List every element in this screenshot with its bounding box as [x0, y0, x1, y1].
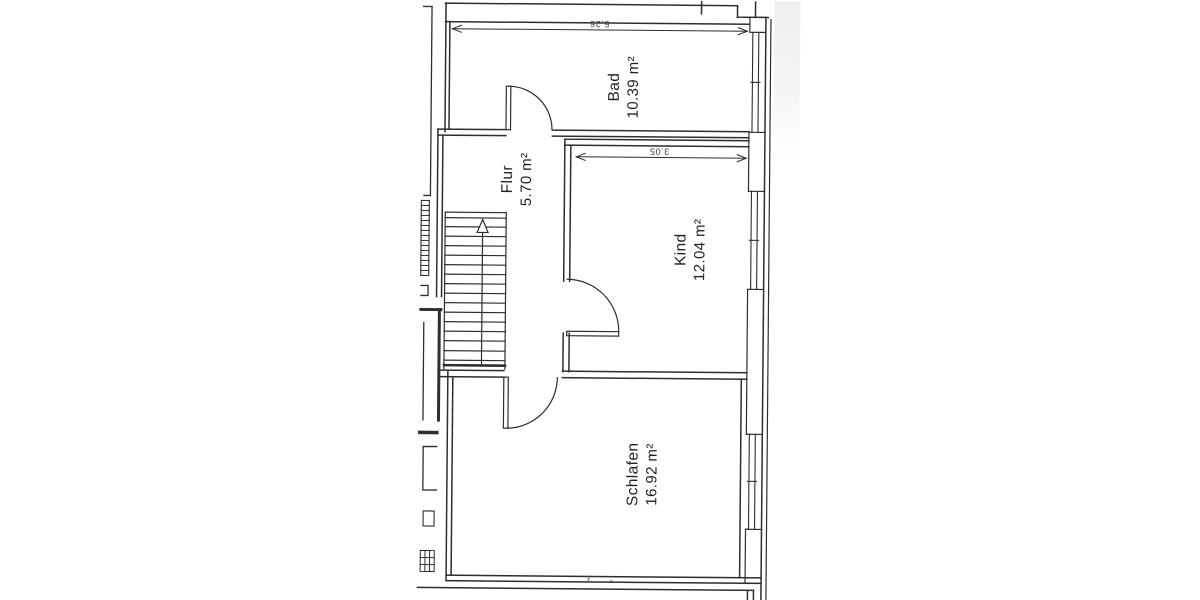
door-kind [567, 279, 619, 336]
dimension-text-bad-width: 5.26 [589, 19, 609, 29]
stair-direction-arrow [476, 219, 488, 364]
room-name: Schlafen [623, 442, 643, 506]
door-schlafen [503, 377, 557, 428]
kind-room-walls [563, 139, 749, 373]
window-schlafen [747, 434, 757, 529]
room-label-kind: Kind 12.04 m² [671, 218, 710, 281]
dimension-text-kind-width: 3.05 [649, 146, 669, 156]
staircase [444, 212, 506, 369]
door-bad [506, 86, 552, 130]
room-label-schlafen: Schlafen 16.92 m² [623, 442, 662, 506]
outer-walls [417, 3, 771, 600]
scanned-floor-plan: Bad 10.39 m² Flur 5.70 m² Kind 12.04 m² … [0, 0, 1200, 600]
room-name: Kind [671, 233, 690, 266]
window-kind [749, 191, 759, 289]
room-name: Bad [605, 73, 624, 102]
scan-speck [610, 580, 613, 582]
adjacent-structure-left [418, 6, 443, 571]
room-area: 10.39 m² [624, 56, 644, 119]
room-label-flur: Flur 5.70 m² [498, 152, 536, 206]
flur-left-wall [437, 129, 443, 297]
window-bad [750, 32, 760, 132]
floor-plan-linework [0, 0, 1200, 600]
schlafen-room-walls [446, 371, 763, 584]
chimney-grid [420, 550, 434, 571]
room-name: Flur [498, 165, 517, 193]
room-area: 16.92 m² [642, 443, 662, 506]
room-label-bad: Bad 10.39 m² [605, 56, 644, 119]
divider-wall [440, 370, 747, 379]
room-area: 5.70 m² [517, 152, 536, 206]
floor-plan-drawing: Bad 10.39 m² Flur 5.70 m² Kind 12.04 m² … [0, 0, 1200, 600]
scan-speck [588, 576, 590, 581]
scan-smudge [773, 2, 800, 162]
roof-line-ticks [701, 1, 755, 17]
room-area: 12.04 m² [690, 219, 710, 282]
